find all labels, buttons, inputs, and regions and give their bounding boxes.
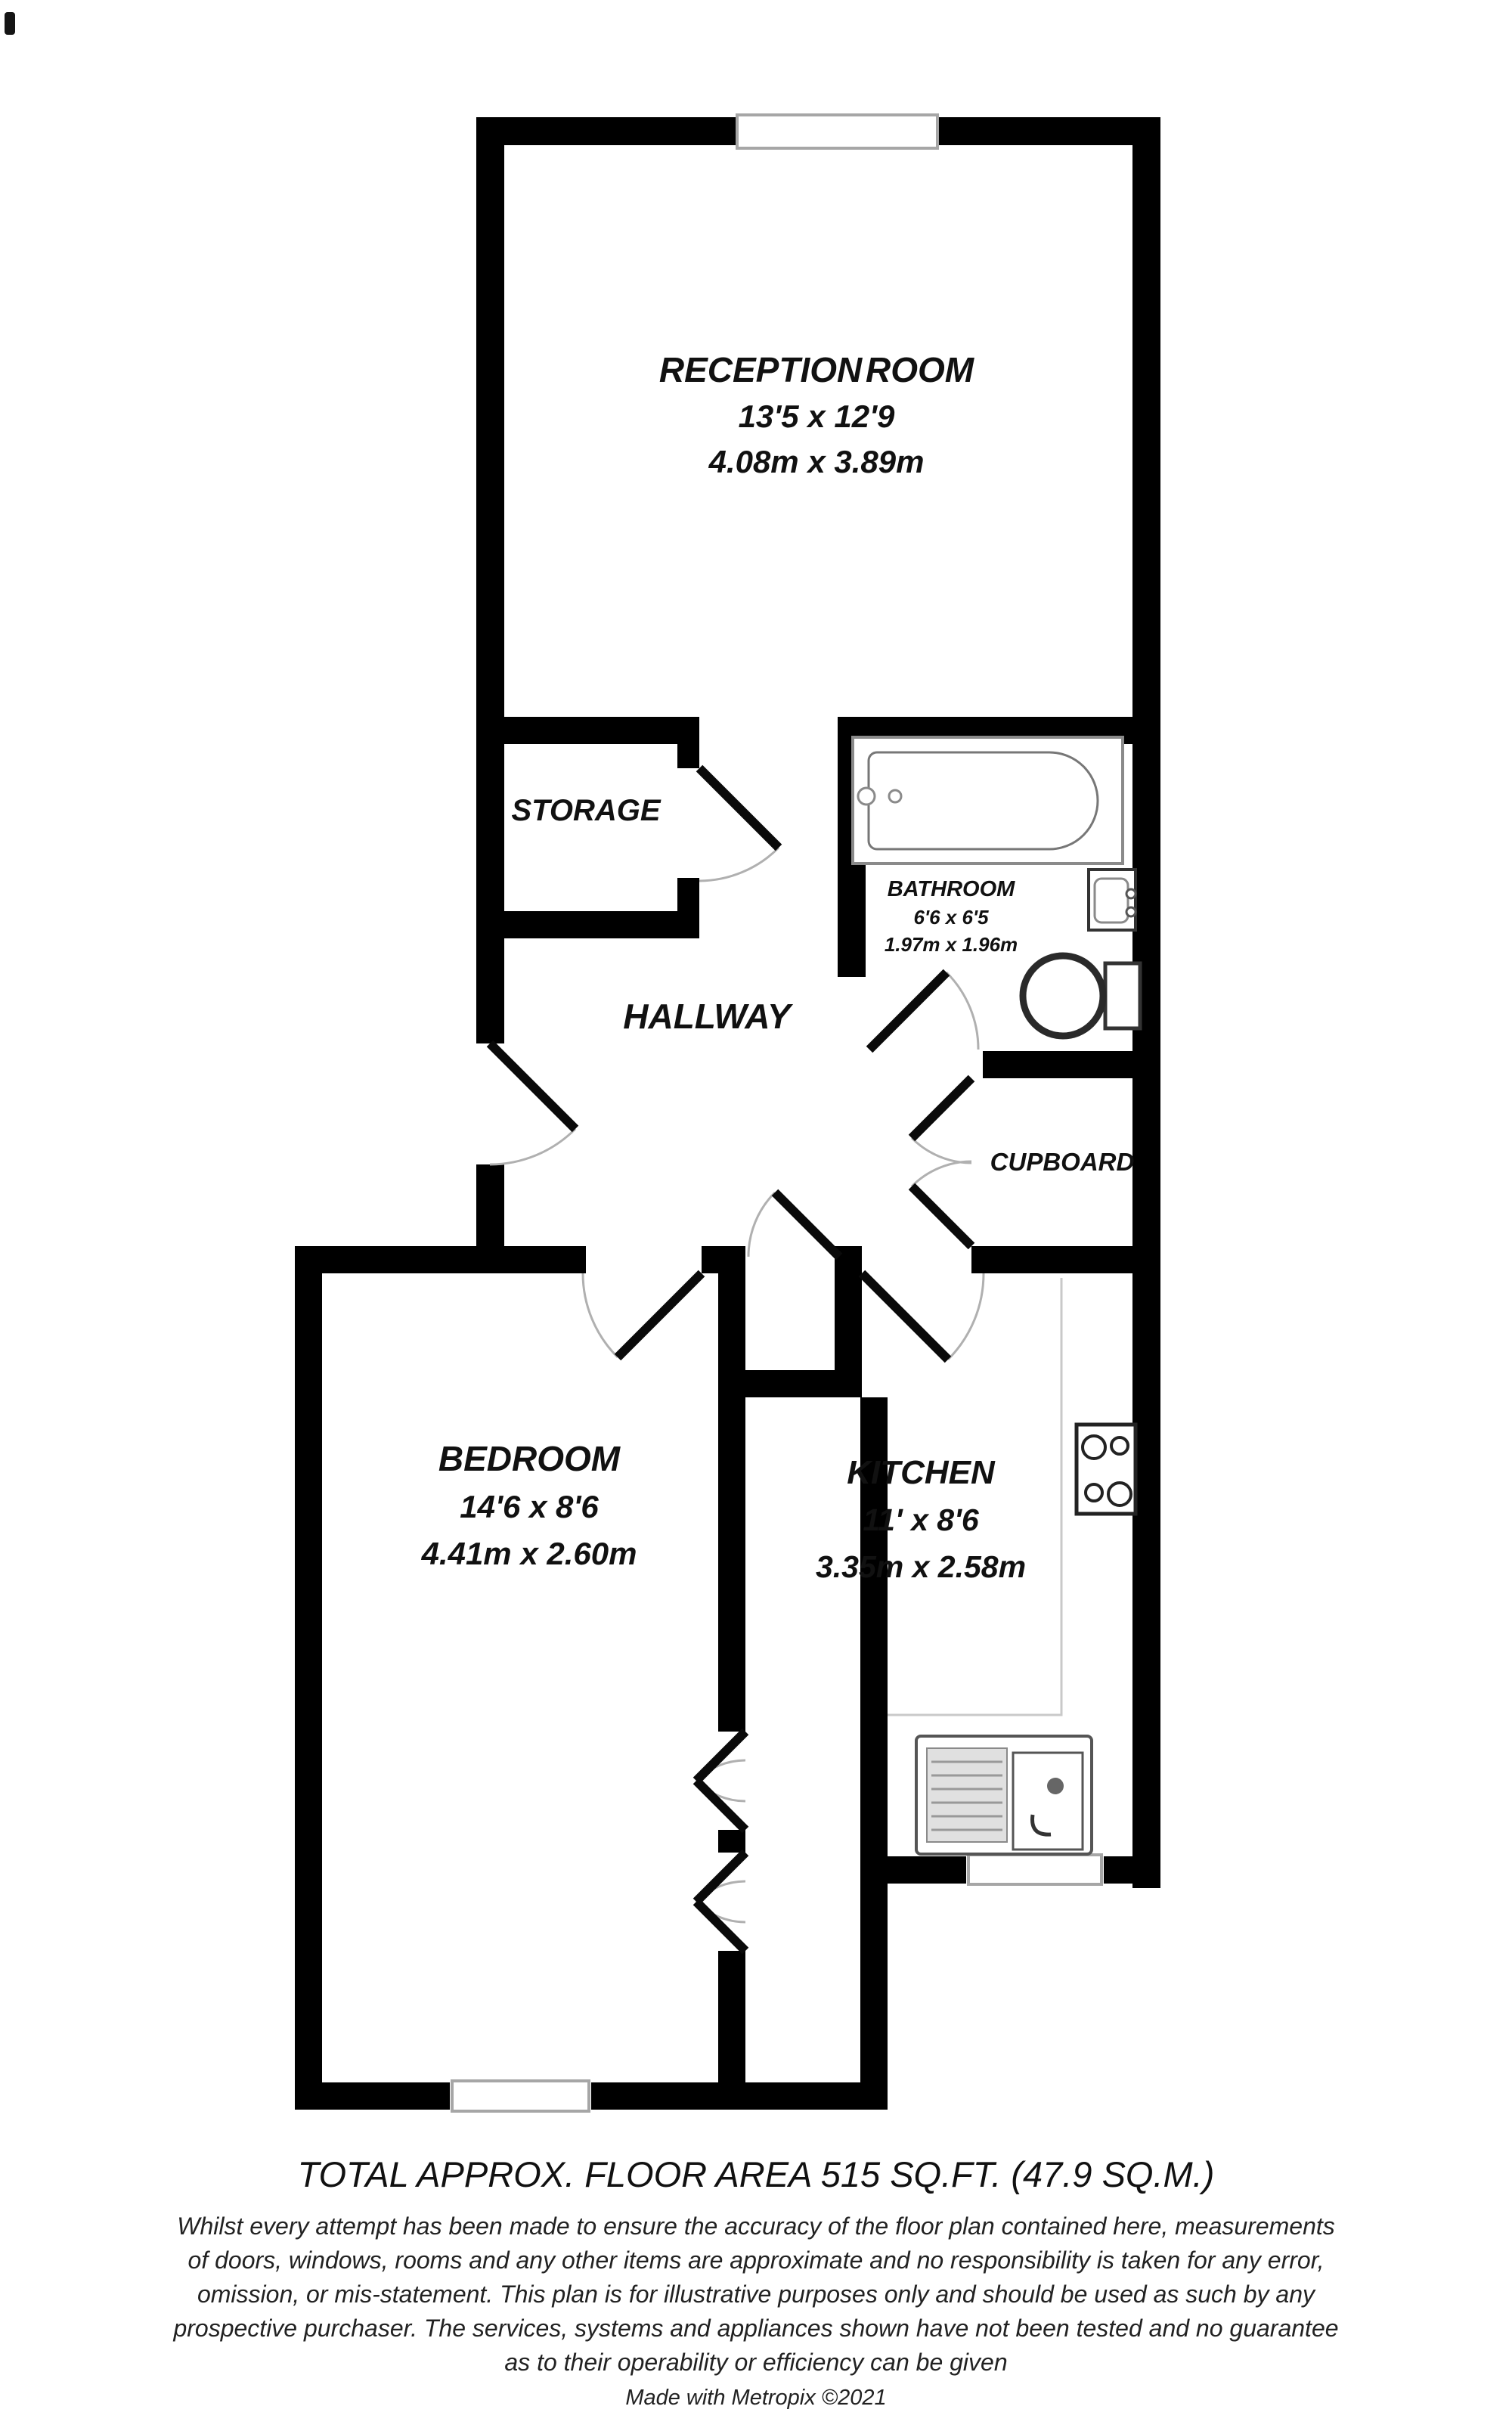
footer: TOTAL APPROX. FLOOR AREA 515 SQ.FT. (47.… [172,2154,1338,2410]
cupboard-door-arc-top [912,1138,971,1163]
bedroom-door-leaf [618,1273,702,1357]
wall-bedroom-top-left [295,1246,586,1273]
wall-bedroom-top-right [702,1246,745,1273]
wall-bedroom-left [295,1246,322,2110]
kitchen-window [968,1855,1101,1884]
basin-tap-2 [1126,907,1136,916]
notch-door-arc [748,1192,775,1257]
storage-door-leaf [699,768,779,848]
wall-divider-upper [718,1273,745,1732]
hob-ring-4 [1108,1483,1131,1505]
reception-room-label: RECEPTION ROOM [659,350,975,389]
wardrobe-door-leaf-1a [696,1732,745,1781]
bathtub-tap-2 [889,790,901,802]
entrance-door-leaf [490,1043,575,1129]
metropix-credit: Made with Metropix ©2021 [625,2386,886,2410]
hob-ring-1 [1083,1436,1105,1459]
kitchen-door-leaf [862,1273,948,1360]
room-labels: RECEPTION ROOM 13'5 x 12'9 4.08m x 3.89m… [421,350,1135,1584]
bathroom-door-arc [947,972,978,1050]
disclaimer-line-1: Whilst every attempt has been made to en… [177,2212,1335,2240]
entrance-door-arc [490,1129,575,1164]
wardrobe-door-leaf-2b [696,1902,745,1951]
total-area-text: TOTAL APPROX. FLOOR AREA 515 SQ.FT. (47.… [298,2154,1215,2194]
counter-line [888,1278,1061,1715]
disclaimer-line-3: omission, or mis-statement. This plan is… [197,2281,1316,2308]
wardrobe-door-leaf-1b [696,1781,745,1830]
cupboard-door-leaf-top [912,1078,971,1138]
basin-tap [1126,889,1136,898]
bedroom-window [452,2081,589,2111]
wall-storage-bottom [476,911,699,938]
bedroom-metric: 4.41m x 2.60m [421,1536,637,1571]
storage-label: STORAGE [511,794,661,827]
bedroom-label: BEDROOM [438,1439,621,1478]
hob-ring-2 [1111,1437,1128,1454]
kitchen-label: KITCHEN [847,1454,996,1491]
wall-divider-lower [718,1951,745,2082]
wash-basin-bowl [1095,879,1128,922]
sink-tap [1047,1778,1064,1794]
toilet [1023,956,1103,1036]
bathtub-tap [858,788,875,805]
disclaimer-line-2: of doors, windows, rooms and any other i… [188,2247,1325,2274]
bathroom-imperial: 6'6 x 6'5 [913,906,989,929]
cupboard-door-leaf-bottom [912,1186,971,1246]
reception-window [737,115,937,148]
floor-plan-page: RECEPTION ROOM 13'5 x 12'9 4.08m x 3.89m… [0,0,1512,2431]
bedroom-imperial: 14'6 x 8'6 [460,1489,599,1524]
floor-plan: RECEPTION ROOM 13'5 x 12'9 4.08m x 3.89m… [0,0,1512,2431]
wall-storage-door-jamb-top [677,744,699,768]
hob-ring-3 [1086,1484,1102,1501]
wall-divider-mid [718,1830,745,1853]
bedroom-door-arc [583,1273,618,1357]
wall-storage-door-jamb-bottom [677,878,699,913]
reception-room-imperial: 13'5 x 12'9 [739,398,895,434]
wall-storage-top [476,717,699,744]
scan-artifact [5,12,15,35]
reception-room-metric: 4.08m x 3.89m [708,444,925,479]
bathroom-metric: 1.97m x 1.96m [885,933,1018,956]
notch-door-leaf [775,1192,839,1257]
disclaimer-line-5: as to their operability or efficiency ca… [504,2349,1007,2376]
bathroom-label: BATHROOM [888,877,1015,901]
cupboard-label: CUPBOARD [990,1148,1135,1176]
storage-door-arc [699,848,779,881]
hallway-label: HALLWAY [623,997,794,1036]
bathtub-inner [869,752,1098,849]
kitchen-door-arc [948,1273,984,1360]
toilet-cistern [1105,963,1140,1028]
kitchen-metric: 3.35m x 2.58m [816,1549,1026,1584]
wall-kitchen-top [971,1246,1160,1273]
wall-notch-right [835,1246,862,1397]
wall-bathroom-bottom [983,1051,1160,1078]
wardrobe-door-leaf-2a [696,1853,745,1902]
cupboard-door-arc-bottom [912,1161,971,1186]
bathroom-door-leaf [869,972,947,1050]
disclaimer-line-4: prospective purchaser. The services, sys… [172,2315,1338,2342]
wall-left-upper [476,117,504,1043]
kitchen-imperial: 11' x 8'6 [863,1502,979,1537]
